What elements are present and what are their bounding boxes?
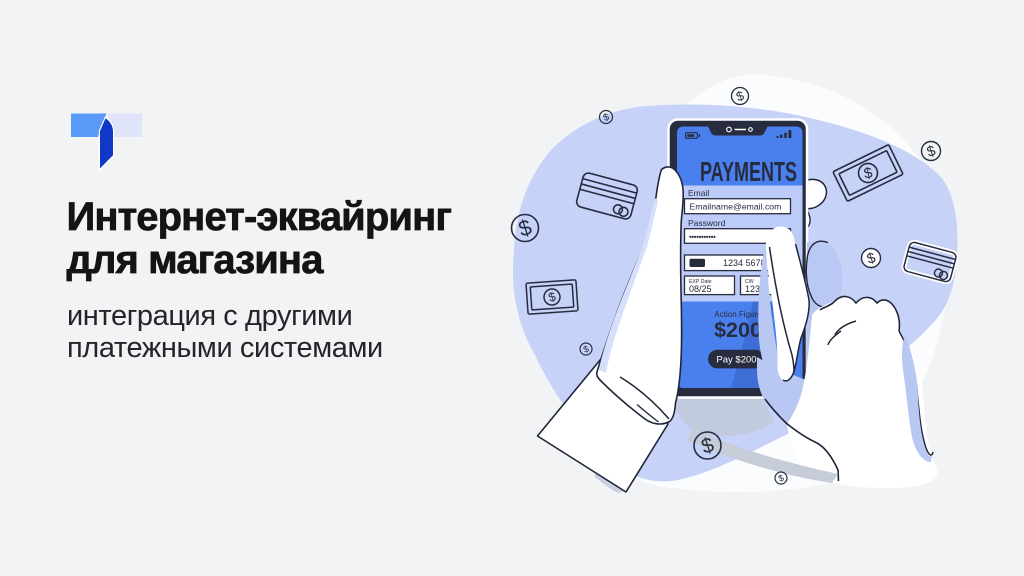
svg-text:08/25: 08/25 bbox=[689, 284, 712, 294]
svg-text:$200: $200 bbox=[714, 318, 762, 342]
svg-text:Pay $200: Pay $200 bbox=[716, 354, 756, 365]
svg-text:PAYMENTS: PAYMENTS bbox=[700, 156, 797, 187]
svg-text:123: 123 bbox=[745, 284, 760, 294]
svg-text:Emailname@email.com: Emailname@email.com bbox=[690, 202, 782, 212]
svg-text:Email: Email bbox=[688, 188, 709, 198]
svg-text:$: $ bbox=[925, 143, 938, 161]
svg-text:Password: Password bbox=[688, 218, 726, 228]
svg-text:•••••••••••: ••••••••••• bbox=[689, 233, 716, 242]
